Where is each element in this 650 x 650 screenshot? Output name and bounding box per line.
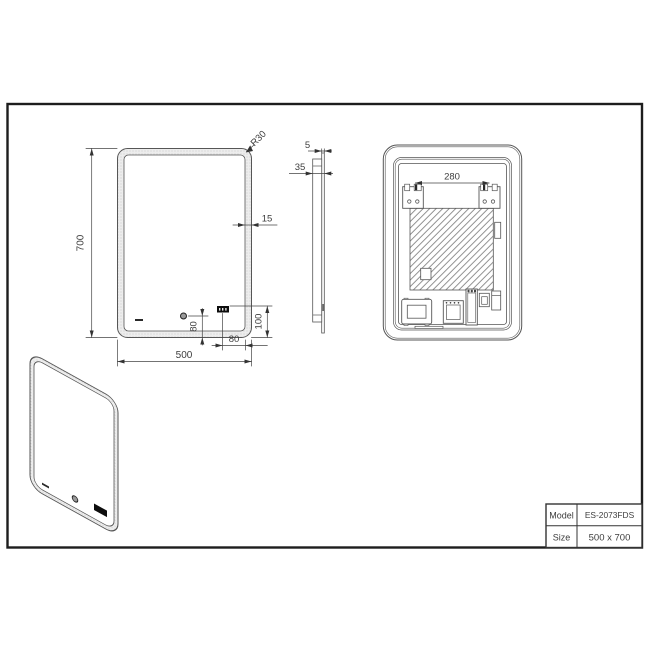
dim-label-bracket: 280 [444, 172, 460, 183]
dim-mirror-height: 700 [76, 149, 118, 338]
dim-label-width: 500 [176, 350, 193, 361]
led-driver [466, 289, 477, 325]
side-clock-edge [322, 304, 324, 311]
terminal-box [492, 291, 501, 310]
dim-label-radius: R30 [249, 129, 269, 149]
cable-bar [415, 326, 443, 328]
side-slot [495, 222, 501, 238]
dim-label-sensor: 80 [189, 321, 200, 332]
dim-label-display-h: 80 [229, 334, 240, 345]
title-block-model-value: ES-2073FDS [585, 510, 635, 520]
perspective-view [30, 352, 118, 536]
dim-label-glass: 5 [305, 140, 310, 151]
defogger-icon [135, 319, 143, 321]
control-box [443, 301, 463, 324]
dim-glass-thickness: 5 [305, 140, 332, 153]
hatch-cutout [421, 268, 431, 279]
dim-label-depth: 35 [295, 162, 306, 173]
dim-label-display-v: 100 [254, 314, 265, 330]
front-view: 700 500 15 R30 [76, 129, 278, 366]
mounting-bracket-left [403, 184, 424, 208]
technical-drawing-canvas: 700 500 15 R30 [0, 0, 650, 650]
dim-label-band: 15 [262, 214, 273, 225]
dim-corner-radius: R30 [246, 129, 269, 153]
back-view: 280 [383, 145, 521, 340]
side-view: 5 35 [289, 140, 333, 333]
clock-display-icon [217, 306, 229, 313]
drawing-sheet: 700 500 15 R30 [0, 0, 650, 650]
title-block-model-label: Model [549, 511, 574, 521]
power-box [479, 293, 489, 306]
perspective-frame-inner [34, 358, 114, 529]
title-block-size-label: Size [553, 533, 571, 543]
front-frame-inner [124, 155, 245, 331]
touch-sensor-icon [181, 313, 187, 319]
side-frame [313, 159, 322, 322]
dim-label-height: 700 [76, 234, 87, 251]
mounting-bracket-right [479, 184, 500, 208]
title-block-size-value: 500 x 700 [589, 533, 631, 544]
dim-frame-depth: 35 [289, 162, 333, 176]
title-block: Model ES-2073FDS Size 500 x 700 [546, 504, 642, 548]
junction-box [402, 298, 432, 325]
